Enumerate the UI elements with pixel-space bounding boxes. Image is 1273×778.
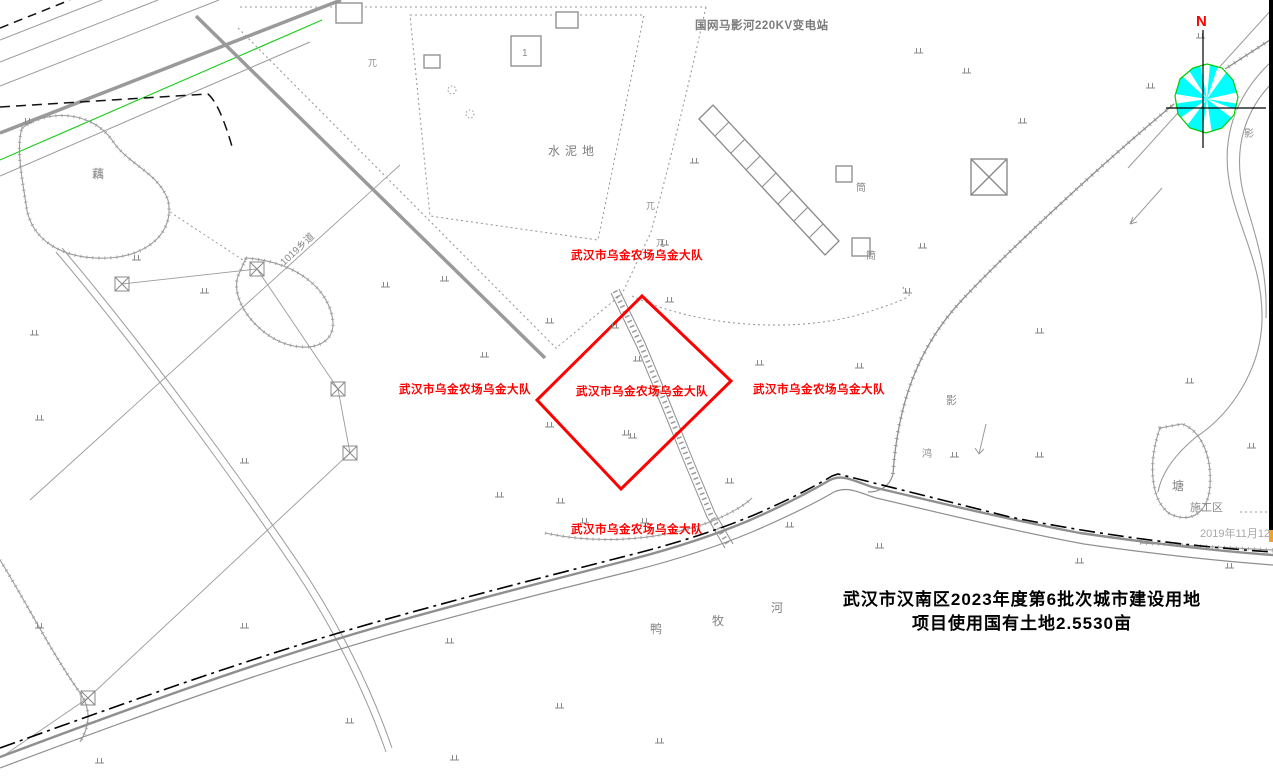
- grass-symbol: [640, 518, 649, 523]
- topographic-map-canvas: N 国网马影河220KV变电站 水泥地 武汉市乌金农场乌金大队 武汉市乌金农场乌…: [0, 0, 1273, 778]
- grass-symbol: [1196, 33, 1205, 38]
- road-1019-label: 1019乡道: [277, 230, 317, 268]
- brigade-label-3: 武汉市乌金农场乌金大队: [576, 384, 708, 398]
- north-compass: N: [1166, 13, 1266, 148]
- grass-symbol: [580, 518, 589, 523]
- grass-symbol: [450, 755, 459, 760]
- shed-label-1: 筒: [856, 181, 866, 194]
- river-char-3: 河: [771, 601, 783, 615]
- grass-symbol: [755, 360, 764, 365]
- survey-station-symbol: [115, 277, 129, 291]
- compass-rose-wedges: [1174, 63, 1239, 134]
- cement-ground-label: 水泥地: [548, 144, 599, 158]
- construction-area-label: 施工区: [1190, 501, 1223, 514]
- traverse-line: [0, 269, 350, 758]
- misc-char-2: 鸿: [922, 447, 932, 460]
- grass-symbol: [95, 758, 104, 763]
- black-dashed-boundary: [0, 94, 233, 150]
- misc-char-6: 兀: [656, 238, 665, 248]
- misc-char-1: 影: [946, 394, 957, 407]
- grass-symbol: [725, 478, 734, 483]
- grass-symbol: [345, 718, 354, 723]
- survey-station-symbol: [331, 382, 345, 396]
- grass-symbol: [1075, 558, 1084, 563]
- grass-symbol: [381, 282, 390, 287]
- large-station-symbol: [971, 159, 1007, 195]
- grass-symbol: [903, 288, 912, 293]
- grass-symbol: [1035, 452, 1044, 457]
- brigade-label-4: 武汉市乌金农场乌金大队: [753, 382, 885, 396]
- substation-compound: [196, 7, 706, 358]
- brigade-label-1: 武汉市乌金农场乌金大队: [571, 248, 703, 262]
- grass-symbol: [240, 623, 249, 628]
- grass-symbol: [918, 243, 927, 248]
- shed-dotted-boundary: [632, 286, 909, 325]
- shed-building: [699, 105, 870, 256]
- grass-symbol: [1225, 563, 1234, 568]
- grass-symbol: [690, 158, 699, 163]
- grass-symbol: [495, 492, 504, 497]
- grass-symbol: [855, 363, 864, 368]
- grass-symbol: [555, 703, 564, 708]
- shed-label-2: 筒: [866, 249, 876, 262]
- grass-symbol: [200, 288, 209, 293]
- grass-symbol: [440, 276, 449, 281]
- survey-station-symbol: [250, 262, 264, 276]
- grass-symbol: [35, 415, 44, 420]
- misc-char-5: 兀: [646, 201, 655, 211]
- brigade-label-2: 武汉市乌金农场乌金大队: [399, 382, 531, 396]
- grass-symbol: [622, 430, 631, 435]
- grass-symbol: [1035, 328, 1044, 333]
- grass-symbol: [240, 458, 249, 463]
- black-dashed-boundary-topleft: [0, 0, 70, 28]
- grass-symbol: [962, 68, 971, 73]
- river-char-1: 鸭: [650, 622, 662, 636]
- misc-char-3: 影: [1244, 128, 1254, 140]
- grass-symbol: [655, 738, 664, 743]
- river-char-2: 牧: [712, 614, 724, 628]
- misc-char-4: 兀: [368, 58, 377, 68]
- grass-symbol: [950, 452, 959, 457]
- grass-symbol: [875, 543, 884, 548]
- grass-symbol: [1018, 118, 1027, 123]
- grass-symbol: [1247, 443, 1256, 448]
- grass-symbol: [556, 498, 565, 503]
- grass-symbol: [480, 352, 489, 357]
- grass-symbol: [445, 638, 454, 643]
- bottomleft-bank: [0, 560, 88, 742]
- grass-symbol: [30, 330, 39, 335]
- project-text-line2: 项目使用国有土地2.5530亩: [912, 613, 1132, 633]
- grass-symbol: [785, 522, 794, 527]
- right-edge-black-strip: [1269, 0, 1273, 530]
- grass-symbol: [665, 297, 674, 302]
- building-number-label: 1: [522, 48, 528, 59]
- topleft-road-band: [0, 0, 341, 176]
- brigade-label-5: 武汉市乌金农场乌金大队: [571, 522, 703, 536]
- survey-station-symbol: [343, 446, 357, 460]
- map-viewport: N 国网马影河220KV变电站 水泥地 武汉市乌金农场乌金大队 武汉市乌金农场乌…: [0, 0, 1273, 778]
- substation-label: 国网马影河220KV变电站: [695, 18, 829, 32]
- pond-label: 塘: [1172, 478, 1184, 493]
- grass-symbol: [132, 255, 141, 260]
- grass-symbol: [545, 318, 554, 323]
- grass-symbol: [1185, 378, 1194, 383]
- grass-symbol: [1146, 83, 1155, 88]
- north-label: N: [1196, 13, 1207, 30]
- lotus-pond-label: 藕: [92, 167, 104, 181]
- flow-arrows: [975, 188, 1162, 454]
- project-text-line1: 武汉市汉南区2023年度第6批次城市建设用地: [843, 589, 1201, 609]
- grass-symbol: [545, 422, 554, 427]
- grass-symbol: [914, 48, 923, 53]
- survey-date-label: 2019年11月12: [1200, 526, 1270, 540]
- ditch-strip: [611, 289, 733, 548]
- road-1019-line: [30, 165, 400, 500]
